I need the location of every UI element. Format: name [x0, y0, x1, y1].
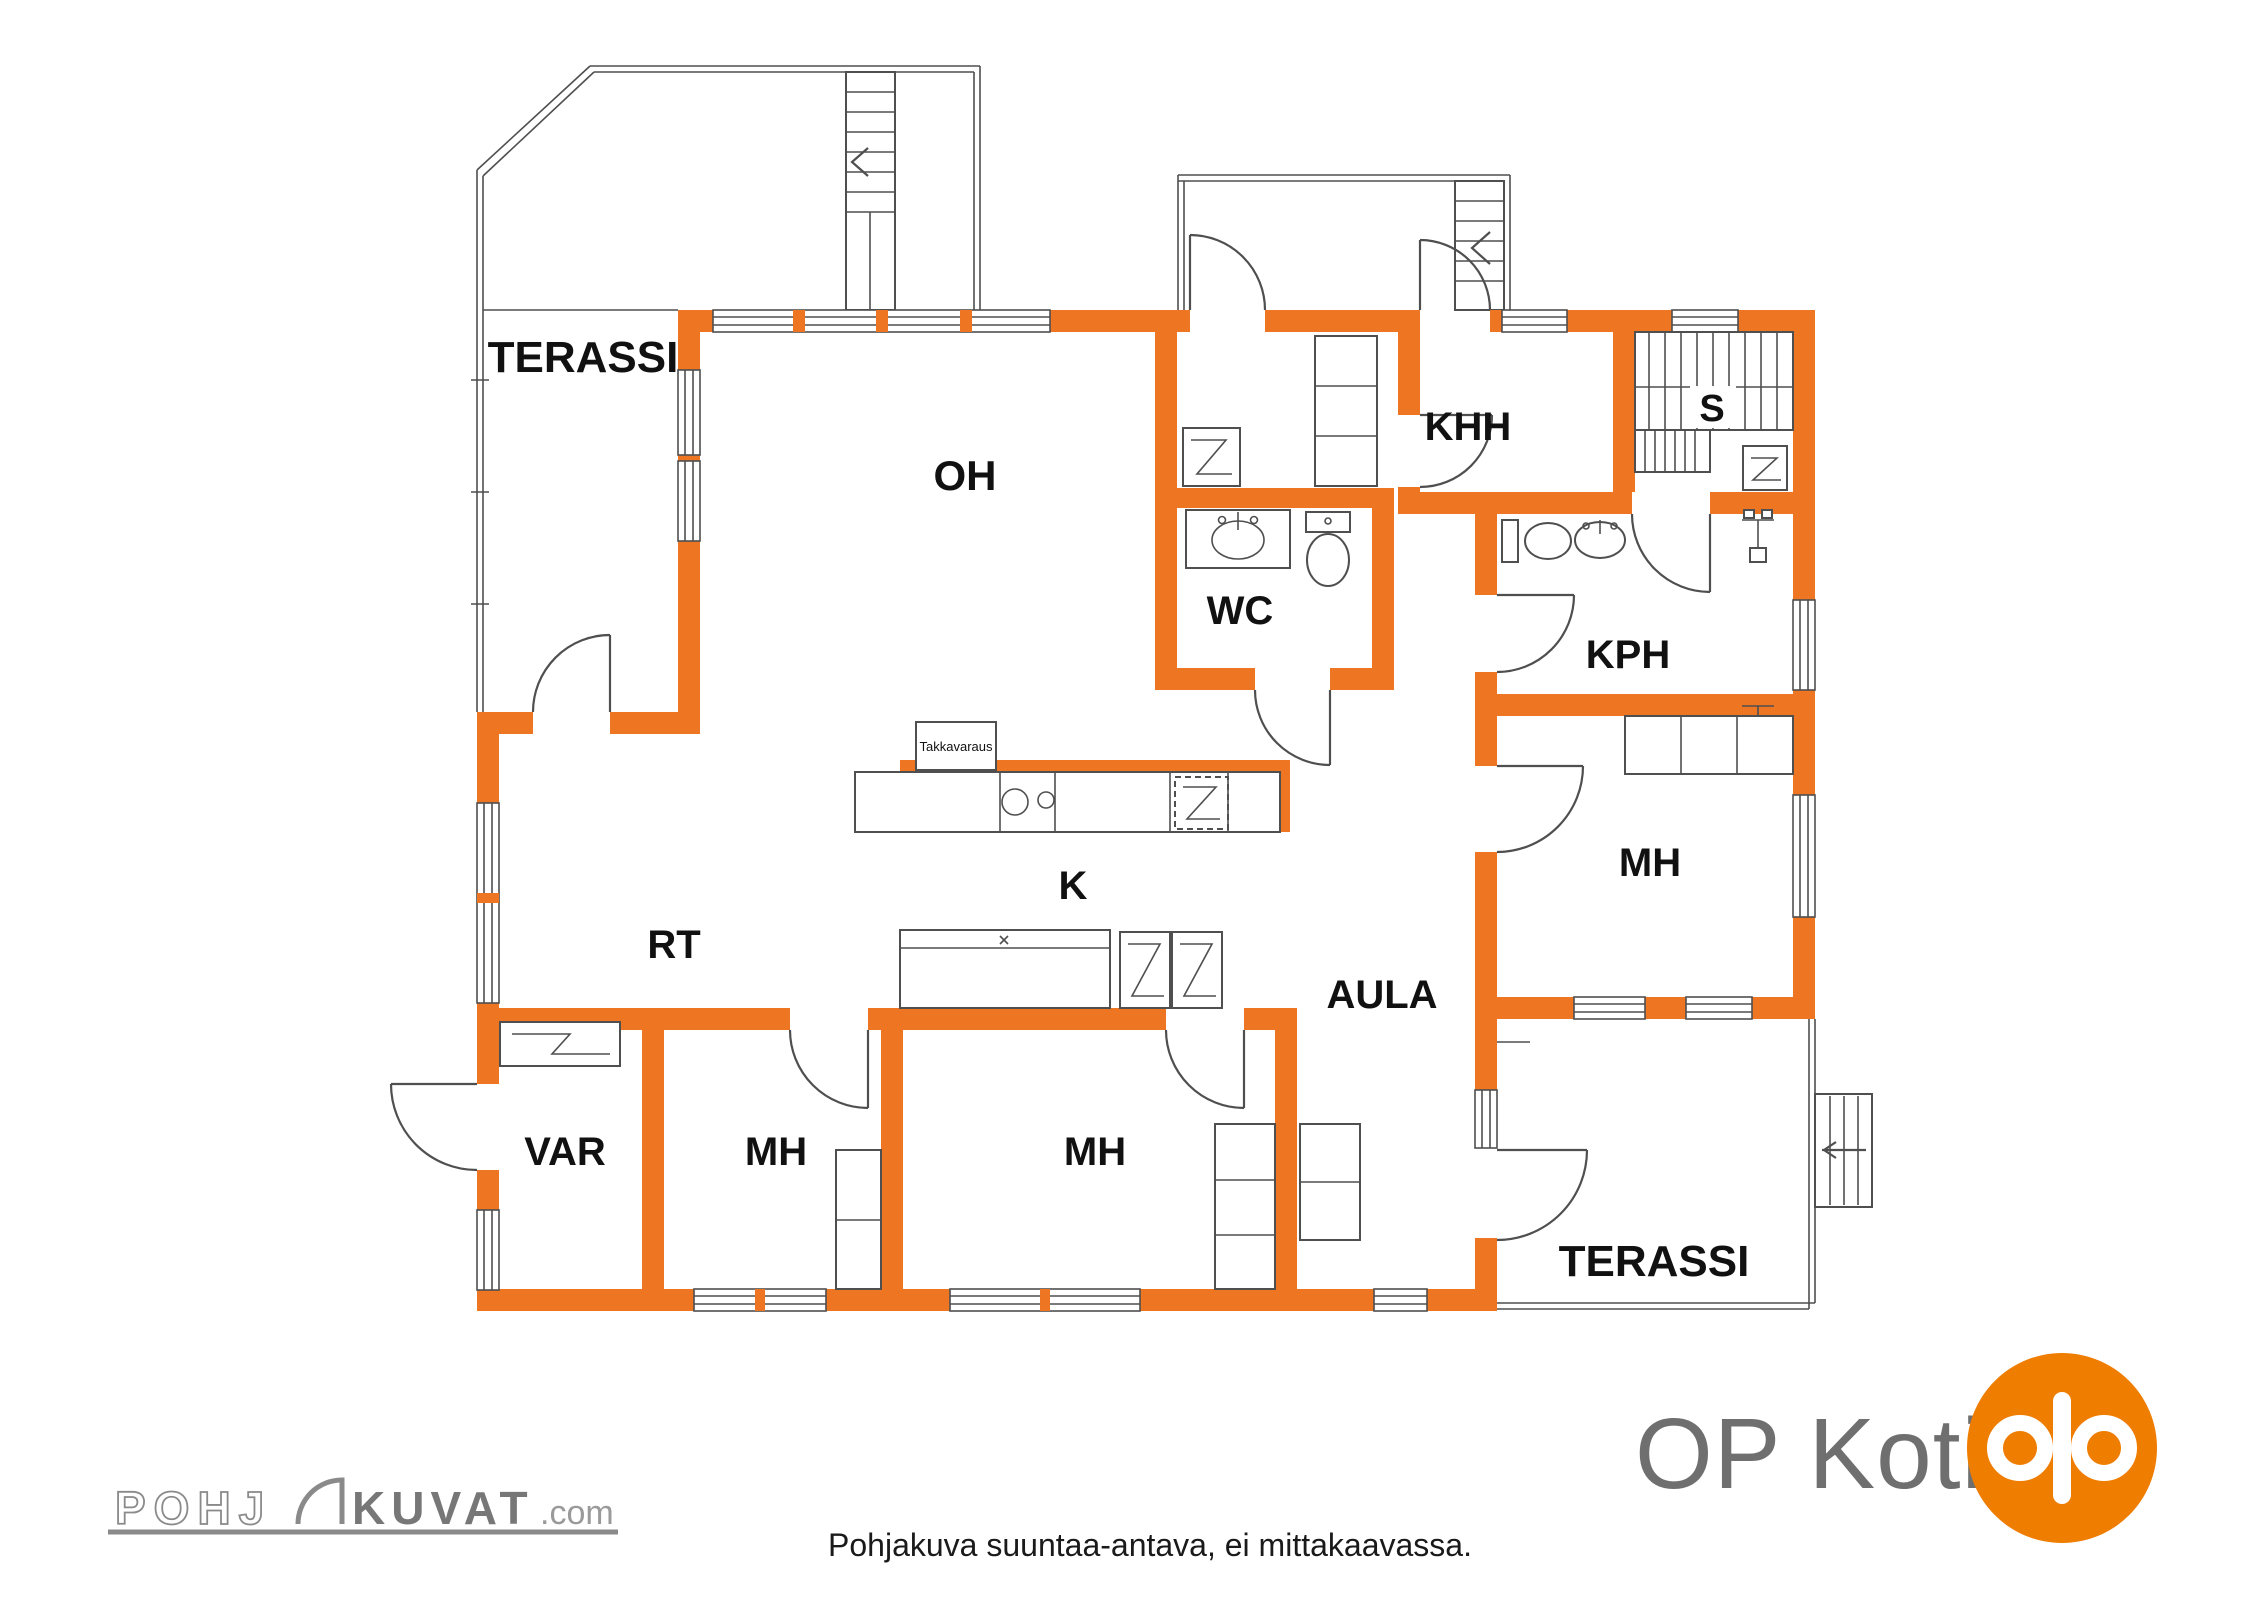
wardrobe-aula	[1300, 1124, 1360, 1240]
disclaimer-text: Pohjakuva suuntaa-antava, ei mittakaavas…	[828, 1527, 1472, 1563]
room-label-k: K	[1059, 864, 1088, 908]
door-mh-south	[1166, 1030, 1244, 1108]
room-label-kph: KPH	[1586, 633, 1670, 677]
sauna-stove-icon	[1743, 446, 1787, 490]
room-label-oh: OH	[934, 452, 997, 499]
wc-sink-icon	[1186, 510, 1290, 568]
kitchen-island	[855, 772, 1280, 832]
pohjakuvat-logo-prefix: POHJ	[115, 1482, 272, 1534]
room-label-terassi-nw: TERASSI	[488, 333, 679, 382]
door-sauna	[1632, 514, 1710, 592]
kitchen-south-counter	[900, 930, 1222, 1008]
room-label-mh-sw: MH	[745, 1130, 807, 1174]
op-logo-icon	[1967, 1353, 2157, 1543]
wc-toilet-icon	[1306, 512, 1350, 586]
floorplan-page: TERASSI OH KHH S WC KPH RT K AULA MH VAR…	[0, 0, 2262, 1600]
op-koti-wordmark: OP Koti	[1635, 1398, 1985, 1510]
door-wc	[1255, 690, 1330, 765]
door-var-exterior	[391, 1084, 477, 1170]
takkavaraus-label: Takkavaraus	[920, 739, 993, 754]
room-label-terassi-se: TERASSI	[1559, 1237, 1750, 1286]
door-mh-right	[1497, 766, 1583, 852]
door-entry-hall	[1190, 235, 1265, 310]
var-panel-icon	[500, 1022, 620, 1066]
room-label-khh: KHH	[1425, 405, 1512, 449]
fridge-freezer-icon	[1120, 932, 1222, 1008]
electrical-panel-icon	[1183, 428, 1240, 486]
terrace-nw-stairs-icon	[846, 72, 895, 310]
room-label-var: VAR	[524, 1130, 606, 1174]
room-label-rt: RT	[647, 923, 700, 967]
wardrobe-mh-right	[1625, 716, 1793, 774]
wardrobe-mh-sw	[836, 1150, 881, 1289]
door-aula-terrace	[1497, 1150, 1587, 1240]
pohjakuvat-logo-main: KUVAT	[352, 1482, 534, 1534]
room-label-mh-south: MH	[1064, 1130, 1126, 1174]
terrace-se-steps-icon	[1815, 1094, 1872, 1207]
room-label-mh-right: MH	[1619, 841, 1681, 885]
wardrobe-mh-south	[1215, 1124, 1275, 1289]
door-kph	[1497, 595, 1574, 672]
door-glyph-icon	[298, 1480, 342, 1524]
door-rt-terrace	[533, 635, 610, 712]
door-mh-sw	[790, 1030, 868, 1108]
terrace-nw-railing	[471, 66, 980, 712]
room-label-sauna: S	[1699, 388, 1724, 430]
kph-sink-icon	[1575, 520, 1625, 558]
doors	[391, 235, 1710, 1240]
entry-porch-steps-icon	[1455, 181, 1504, 310]
floorplan-drawing: TERASSI OH KHH S WC KPH RT K AULA MH VAR…	[0, 0, 2262, 1600]
pohjakuvat-logo-suffix: .com	[540, 1494, 614, 1532]
hall-closet	[1315, 336, 1377, 486]
room-label-aula: AULA	[1326, 973, 1437, 1017]
op-koti-logo: OP Koti	[1635, 1353, 2157, 1543]
pohjakuvat-logo: POHJ KUVAT .com	[108, 1480, 618, 1534]
room-label-wc: WC	[1207, 589, 1274, 633]
kph-toilet-icon	[1502, 520, 1571, 562]
